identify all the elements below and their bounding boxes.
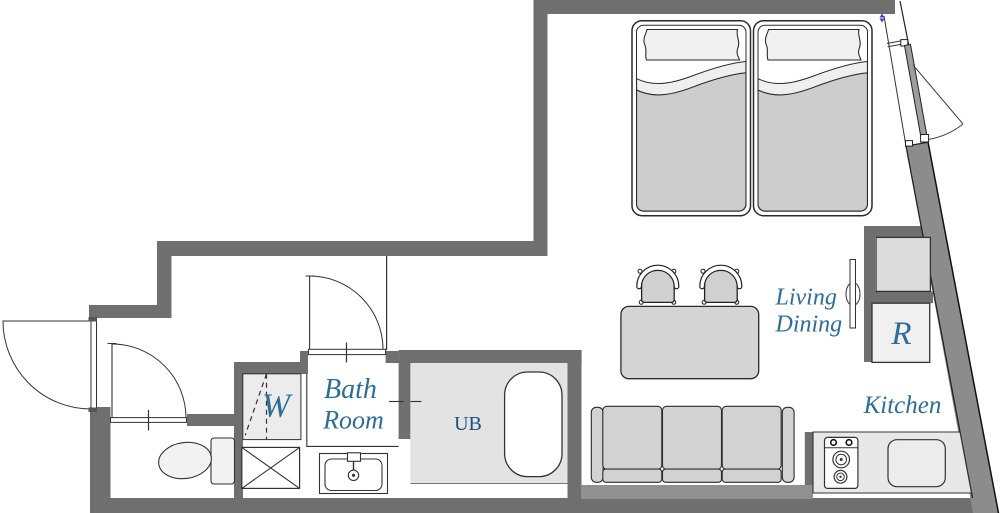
svg-text:Bath: Bath xyxy=(324,374,377,405)
svg-text:Room: Room xyxy=(322,406,384,435)
svg-text:R: R xyxy=(890,316,911,352)
svg-text:UB: UB xyxy=(454,413,482,435)
svg-text:Dining: Dining xyxy=(775,312,843,338)
svg-text:W: W xyxy=(262,388,293,425)
svg-text:Kitchen: Kitchen xyxy=(863,392,942,419)
svg-text:Living: Living xyxy=(775,285,837,311)
